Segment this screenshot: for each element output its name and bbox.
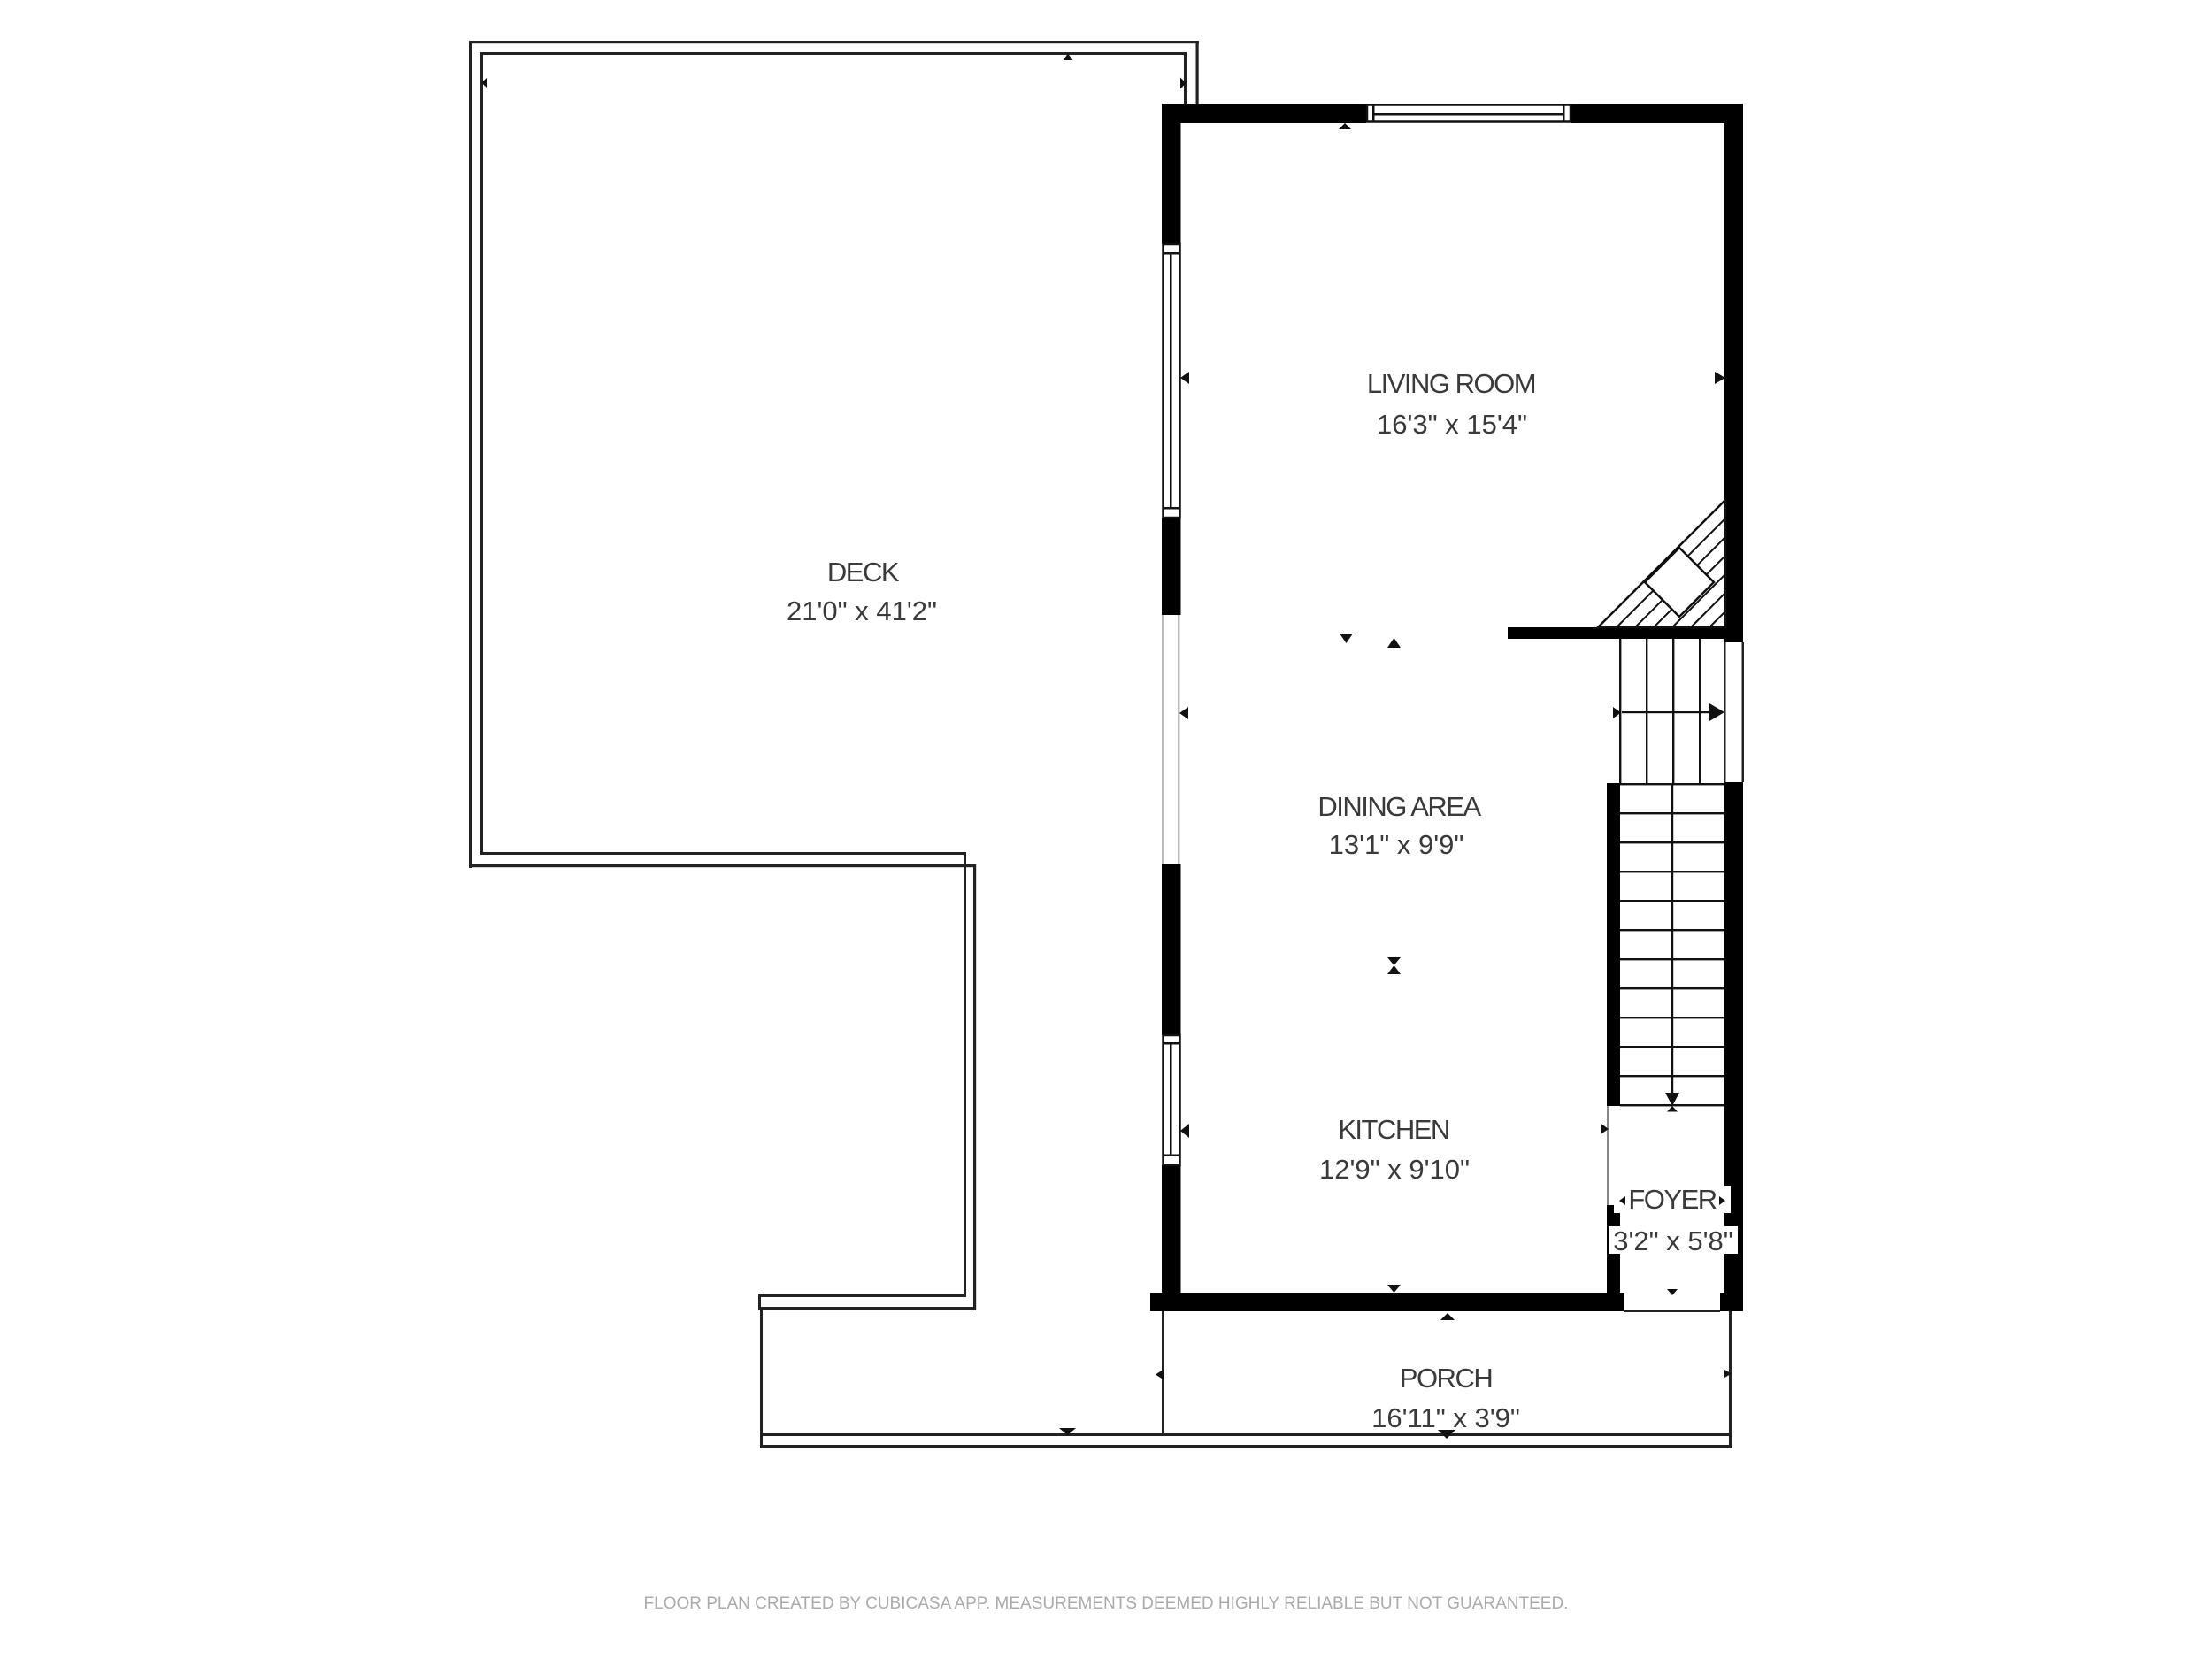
svg-text:DECK: DECK <box>827 557 900 588</box>
svg-text:FLOOR PLAN CREATED BY CUBICASA: FLOOR PLAN CREATED BY CUBICASA APP. MEAS… <box>644 1594 1569 1613</box>
svg-text:3'2" x 5'8": 3'2" x 5'8" <box>1613 1225 1733 1256</box>
svg-text:KITCHEN: KITCHEN <box>1338 1114 1449 1145</box>
svg-text:21'0" x 41'2": 21'0" x 41'2" <box>787 595 937 626</box>
svg-text:LIVING ROOM: LIVING ROOM <box>1367 368 1535 399</box>
svg-text:PORCH: PORCH <box>1400 1363 1492 1394</box>
svg-text:12'9" x 9'10": 12'9" x 9'10" <box>1319 1154 1470 1185</box>
svg-text:FOYER: FOYER <box>1628 1184 1716 1215</box>
svg-text:13'1" x 9'9": 13'1" x 9'9" <box>1329 829 1464 860</box>
svg-text:DINING AREA: DINING AREA <box>1317 791 1481 822</box>
svg-text:16'3" x 15'4": 16'3" x 15'4" <box>1377 409 1527 440</box>
svg-text:16'11" x 3'9": 16'11" x 3'9" <box>1371 1402 1520 1433</box>
